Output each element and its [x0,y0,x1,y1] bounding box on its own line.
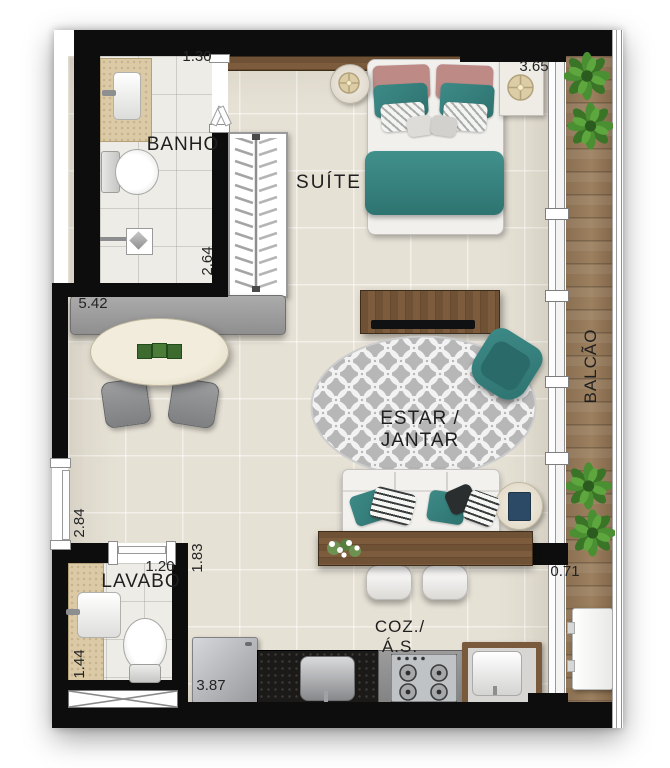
lavabo-door-leaf [118,546,166,554]
bed-cushion-right [430,114,459,137]
floor-plan-canvas: BANHO SUÍTE BALCÃO ESTAR / JANTAR LAVABO… [0,0,670,768]
balcony-railing [612,30,623,728]
sliding-door-suite-balcony [548,62,565,208]
bathroom-faucet-icon [102,90,116,96]
round-accent-table [495,482,543,530]
stove-counter [378,650,465,706]
wall-left-lower [52,543,68,702]
room-label-balcao: BALCÃO [581,321,601,411]
tray-icon [508,492,531,521]
plant-icon [568,100,613,152]
shower-drain [126,228,153,255]
plant-icon [570,506,615,560]
table-plant-icon [152,343,167,358]
dimension-living-width: 5.42 [72,295,114,313]
wardrobe-rack [228,132,288,298]
plant-icon [564,50,610,102]
dimension-lavabo-depth: 1.44 [71,643,89,685]
service-shaft [68,690,178,708]
dimension-entry-wall: 2.84 [71,502,89,544]
table-plant-icon [137,344,152,359]
room-label-coz-as: COZ./Á.S. [358,617,442,657]
wall-left-living [52,283,68,465]
window-mullion [545,290,569,302]
lavabo-faucet-icon [66,609,80,615]
dimension-kitchen-width: 3.87 [190,677,232,695]
table-lamp-icon [338,72,360,94]
laundry-faucet-icon [493,686,497,695]
window-living-2 [548,301,565,376]
fridge-handle-icon [245,642,252,646]
bathroom-sink [113,72,141,120]
door-jamb [50,540,71,550]
shaft-x-icon [69,691,177,707]
tv-console [360,290,500,334]
double-bed [365,59,504,235]
lavabo-sink [77,592,121,638]
wall-right-bottom [528,693,568,705]
dimension-banho-depth: 2.64 [199,240,217,282]
dimension-banho-width: 1.30 [176,48,218,66]
ac-bracket-icon [567,622,575,634]
table-lamp-icon [507,74,534,101]
table-plant-icon [167,344,182,359]
plant-icon [566,460,611,512]
dimension-lavabo-width: 1.20 [139,558,181,576]
flowers-icon [322,534,368,562]
dimension-balcony-width: 0.71 [544,563,586,581]
door-jamb [108,541,118,565]
stool [422,565,468,600]
dimension-suite-width: 3.65 [513,58,555,76]
kitchen-counter-dark [257,650,380,706]
sofa-cushion-line [446,472,448,492]
shower-head-icon [129,231,147,249]
door-jamb [50,458,71,468]
stool [366,565,412,600]
room-label-suite: SUÍTE [283,172,375,194]
window-living-3 [548,387,565,452]
sliding-door-kitchen-balcony [548,565,565,693]
laundry-basin [472,651,522,696]
shower-arm-icon [100,237,128,241]
lavabo-toilet-tank [129,664,161,683]
dimension-kitchen-wall: 1.83 [189,537,207,579]
bed-blanket [365,151,504,215]
entry-door-leaf [62,470,70,540]
ac-condenser-unit [572,608,613,690]
ac-bracket-icon [567,660,575,672]
room-label-banho: BANHO [137,134,229,156]
tv-icon [371,320,475,329]
window-mullion [545,208,569,220]
wall-left-bathroom [74,30,100,297]
room-label-estar-jantar: ESTAR / JANTAR [344,408,496,452]
window-living-4 [548,464,565,543]
wall-right-mid [528,543,568,565]
window-mullion [545,376,569,388]
window-living-1 [548,219,565,290]
cooktop-icon [391,654,457,702]
hangers-icon [230,134,282,292]
